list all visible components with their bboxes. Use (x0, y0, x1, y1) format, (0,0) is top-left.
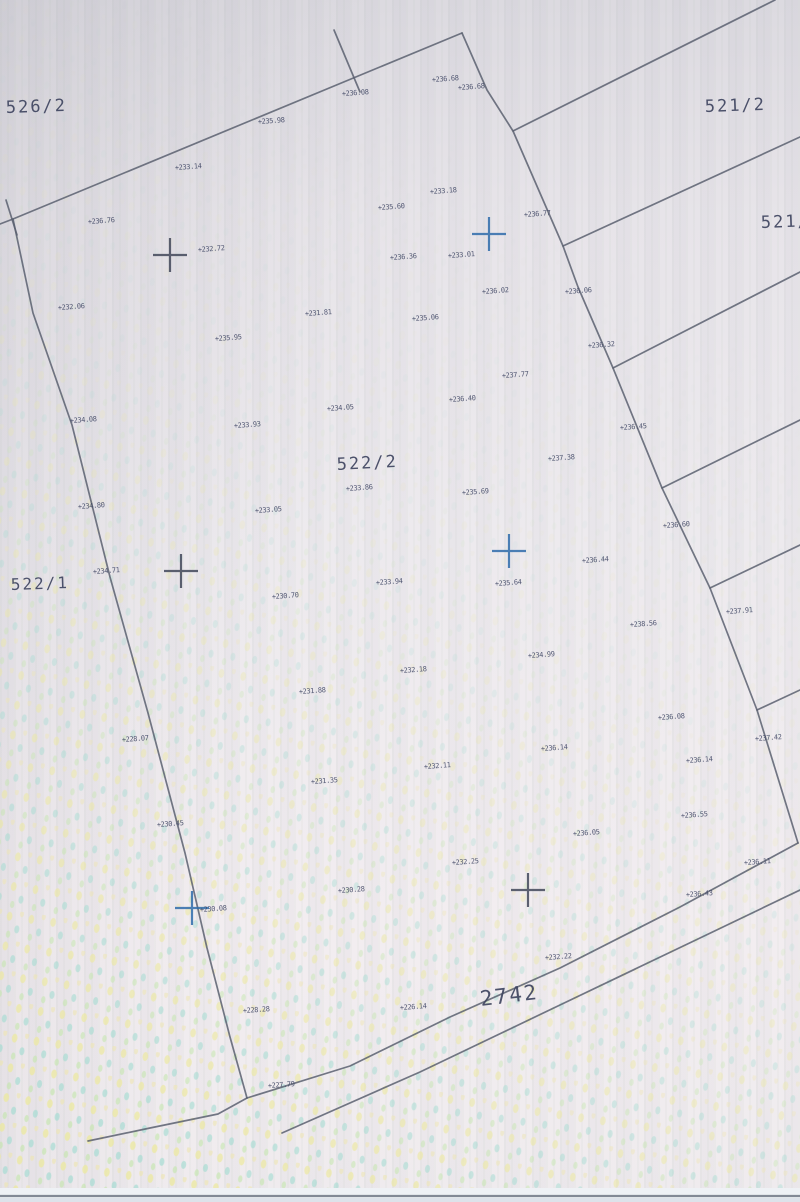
parcel-label: 522/2 (336, 452, 398, 475)
cadastral-map-scan: +236.08+235.98+233.14+236.68+236.68+233.… (0, 0, 800, 1202)
parcel-label: 522/1 (10, 573, 69, 594)
cadastral-map: +236.08+235.98+233.14+236.68+236.68+233.… (0, 0, 800, 1202)
halftone-texture (0, 0, 800, 1202)
scan-edge-lower-strip (0, 1198, 800, 1202)
parcel-label: 526/2 (5, 96, 67, 118)
parcel-label: 521/2 (704, 95, 766, 117)
scan-bottom-edge (0, 1188, 800, 1202)
parcel-label: 521/1 (760, 211, 800, 233)
